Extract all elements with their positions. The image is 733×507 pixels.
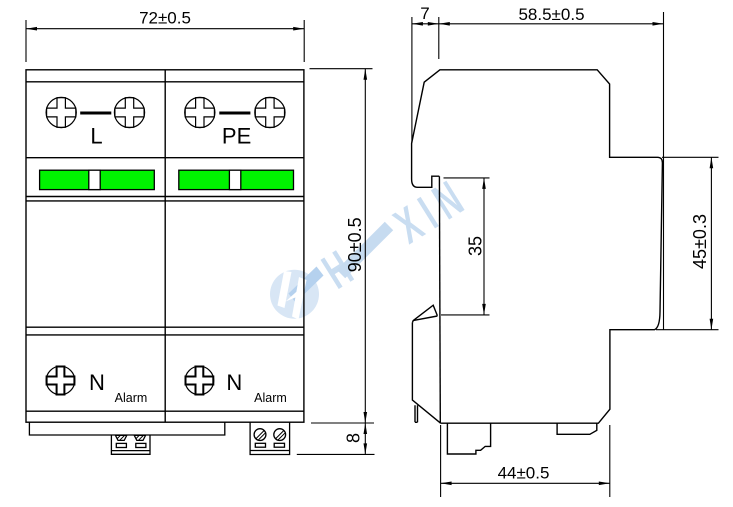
svg-text:N: N xyxy=(89,370,105,395)
svg-text:45±0.3: 45±0.3 xyxy=(690,214,710,269)
svg-text:72±0.5: 72±0.5 xyxy=(139,9,191,28)
svg-text:PE: PE xyxy=(222,124,251,149)
svg-text:N: N xyxy=(226,370,242,395)
svg-text:7: 7 xyxy=(420,4,429,23)
svg-text:58.5±0.5: 58.5±0.5 xyxy=(518,5,584,24)
svg-text:35: 35 xyxy=(466,236,486,256)
svg-text:L: L xyxy=(90,124,102,149)
svg-text:44±0.5: 44±0.5 xyxy=(498,464,550,483)
svg-text:8: 8 xyxy=(344,433,364,443)
svg-text:Alarm: Alarm xyxy=(254,391,287,405)
svg-text:90±0.5: 90±0.5 xyxy=(345,217,365,272)
svg-text:Alarm: Alarm xyxy=(115,391,148,405)
